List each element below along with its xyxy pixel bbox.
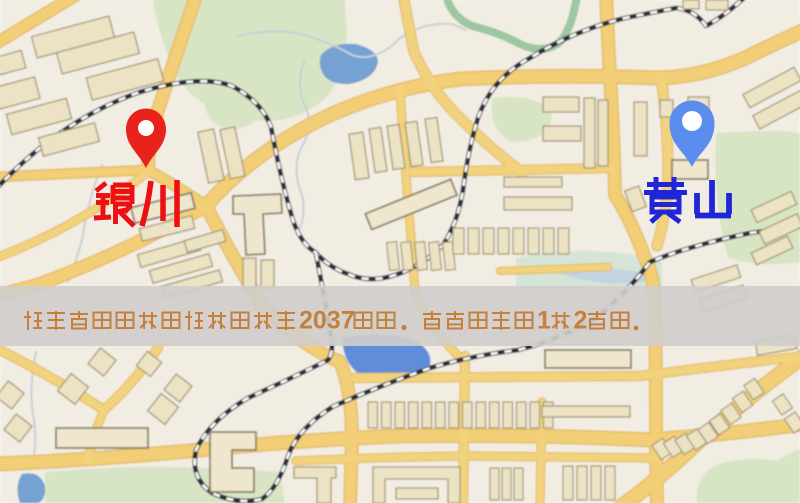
svg-text:1: 1	[537, 307, 551, 335]
svg-text:2: 2	[574, 307, 588, 335]
svg-text:2037: 2037	[299, 307, 355, 335]
